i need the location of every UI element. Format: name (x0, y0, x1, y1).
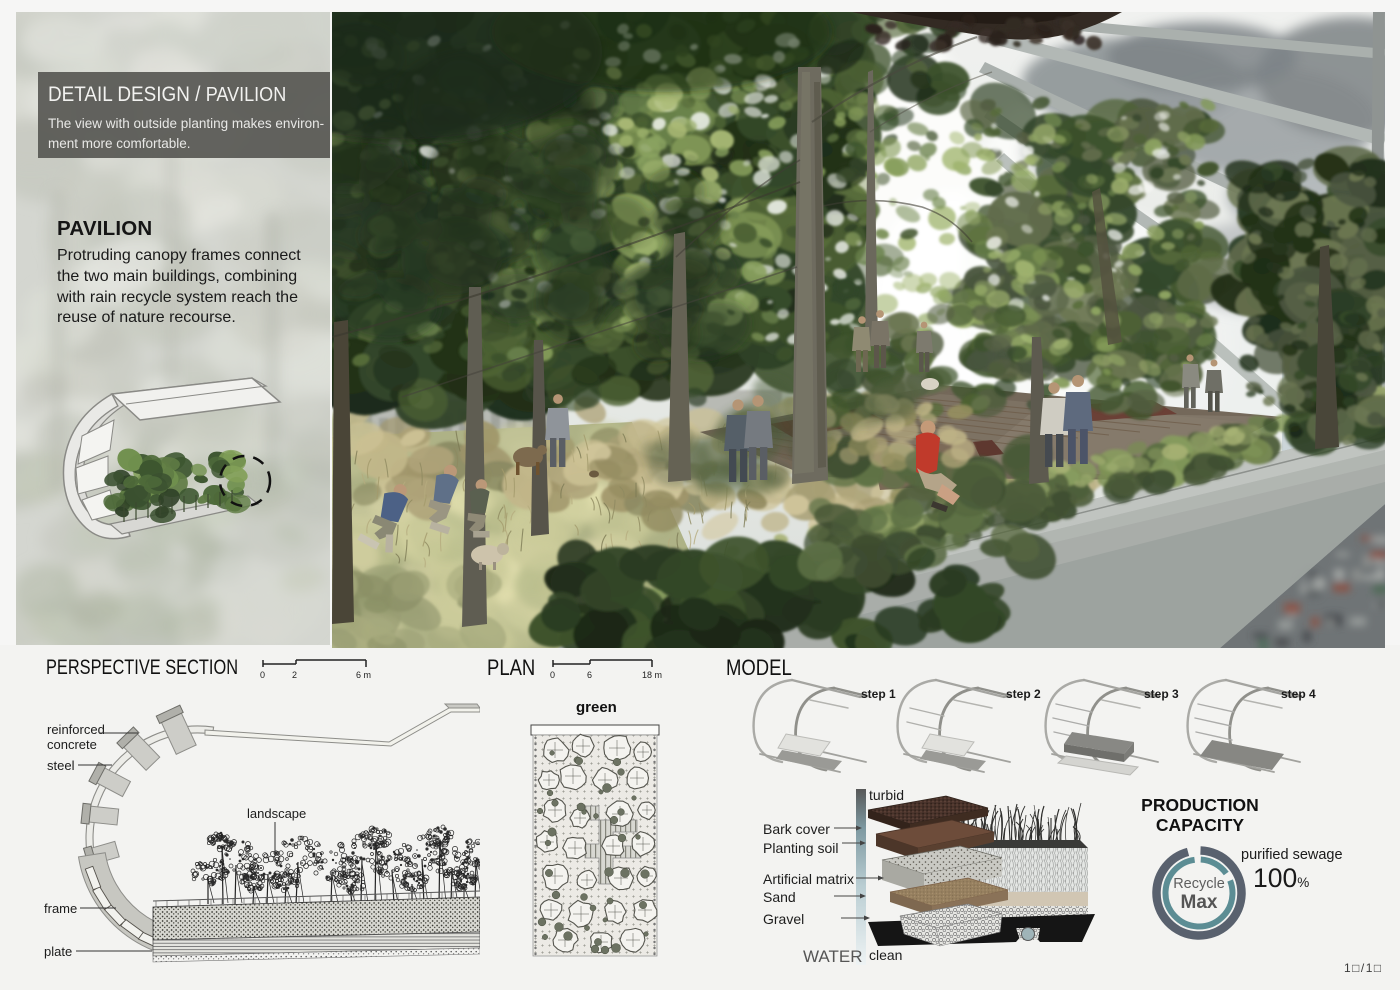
svg-text:0: 0 (260, 670, 265, 680)
svg-text:2: 2 (292, 670, 297, 680)
svg-text:0: 0 (550, 670, 555, 680)
svg-text:6 m: 6 m (356, 670, 371, 680)
svg-text:18 m: 18 m (642, 670, 662, 680)
svg-text:6: 6 (587, 670, 592, 680)
